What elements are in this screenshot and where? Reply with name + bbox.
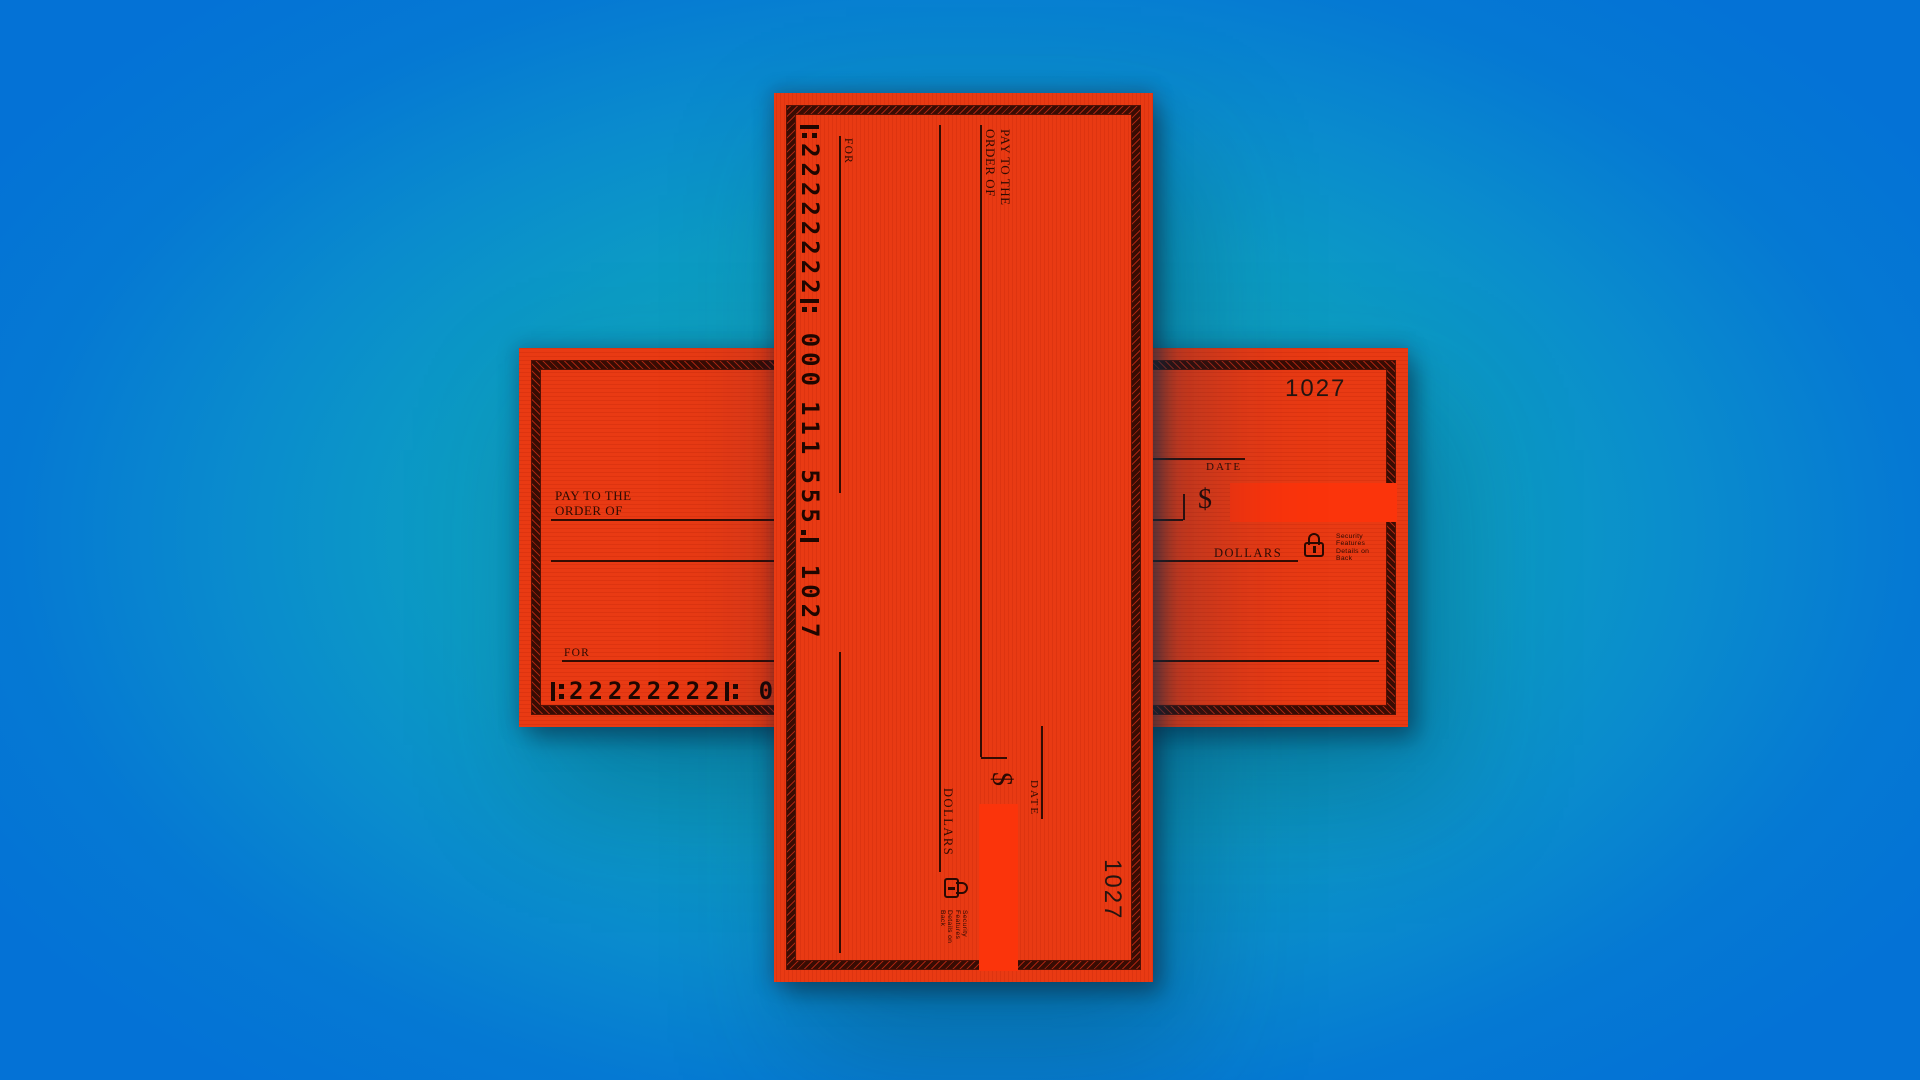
date-label: DATE [1206,461,1242,473]
pay-to-line2: ORDER OF [982,129,997,206]
dollar-sign: $ [1198,484,1212,516]
pay-to-line1: PAY TO THE [555,489,632,504]
dollars-label: DOLLARS [940,788,955,856]
signature-line [840,652,842,953]
micr-account-group: 000 [796,333,824,391]
security-note-line: Security [1336,533,1369,540]
check-number: 1027 [1098,859,1126,920]
micr-account-group: 555 [796,469,824,527]
amount-divider [1183,494,1185,520]
dollar-sign: $ [985,772,1017,786]
memo-label: FOR [564,647,590,659]
memo-label: FOR [842,138,854,164]
check-vertical: 1027 DATE PAY TO THE ORDER OF $ DOLLARS … [774,93,1153,982]
micr-transit-icon [801,299,820,312]
micr-line: 22222222 000 111 555 1027 [797,125,823,642]
date-line [1042,726,1044,819]
security-note: Security Features Details on Back [1336,533,1369,563]
security-note: Security Features Details on Back [938,910,968,943]
pay-to-line1: PAY TO THE [997,129,1012,206]
illustration-background: 1027 DATE PAY TO THE ORDER OF $ DOLLARS … [0,0,1920,1080]
lock-keyhole [948,887,955,890]
security-note-line: Back [938,910,945,943]
amount-box [979,804,1018,971]
pay-to-label: PAY TO THE ORDER OF [982,129,1012,206]
security-note-line: Security [961,910,968,943]
pay-to-line2: ORDER OF [555,504,632,519]
dollars-label: DOLLARS [1214,546,1282,561]
micr-routing: 22222222 [569,677,725,705]
micr-transit-icon [551,682,564,701]
date-line [1152,458,1245,460]
micr-check-number: 1027 [796,565,824,643]
micr-onus-icon [801,530,820,542]
security-note-line: Features [953,910,960,943]
dollars-line [940,125,942,872]
security-note-line: Back [1336,555,1369,562]
security-note-line: Features [1336,540,1369,547]
micr-transit-icon [801,125,820,138]
security-note-line: Details on [946,910,953,943]
micr-transit-icon [725,682,738,701]
pay-to-label: PAY TO THE ORDER OF [555,489,632,519]
lock-icon [944,878,968,898]
memo-line [840,136,842,493]
check-number: 1027 [1285,375,1346,403]
micr-routing: 22222222 [796,143,824,299]
micr-account-group: 111 [796,401,824,459]
amount-divider [981,757,1007,759]
amount-box [1230,483,1397,522]
date-label: DATE [1028,780,1040,816]
lock-keyhole [1313,546,1316,553]
lock-icon [1304,533,1324,557]
security-note-line: Details on [1336,548,1369,555]
payee-line [981,125,983,757]
